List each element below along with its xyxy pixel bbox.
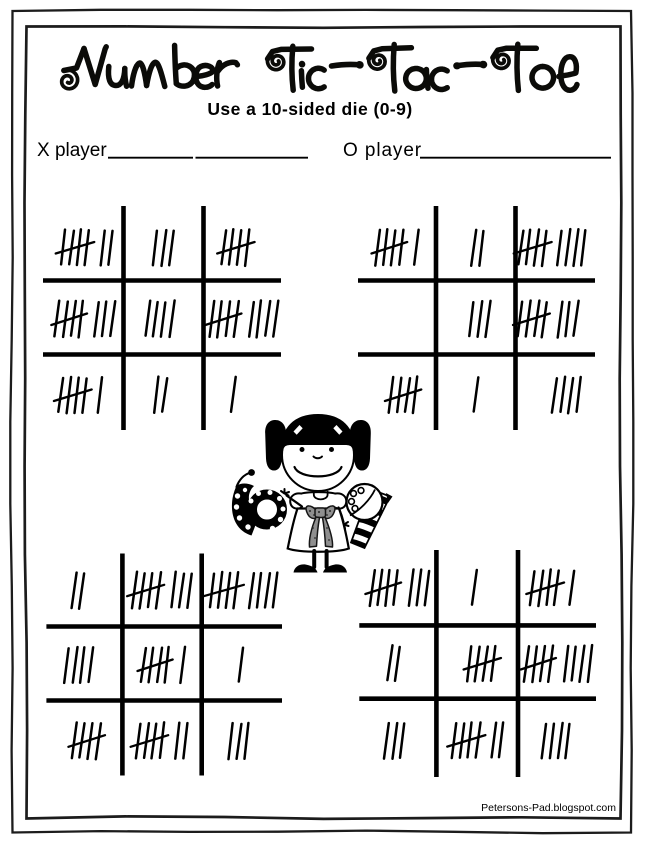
svg-text:Use a 10-sided die (0-9): Use a 10-sided die (0-9) [207, 99, 412, 119]
svg-text:O player: O player [343, 140, 422, 161]
svg-text:Petersons-Pad.blogspot.com: Petersons-Pad.blogspot.com [481, 802, 616, 814]
svg-text:X player: X player [37, 140, 107, 161]
